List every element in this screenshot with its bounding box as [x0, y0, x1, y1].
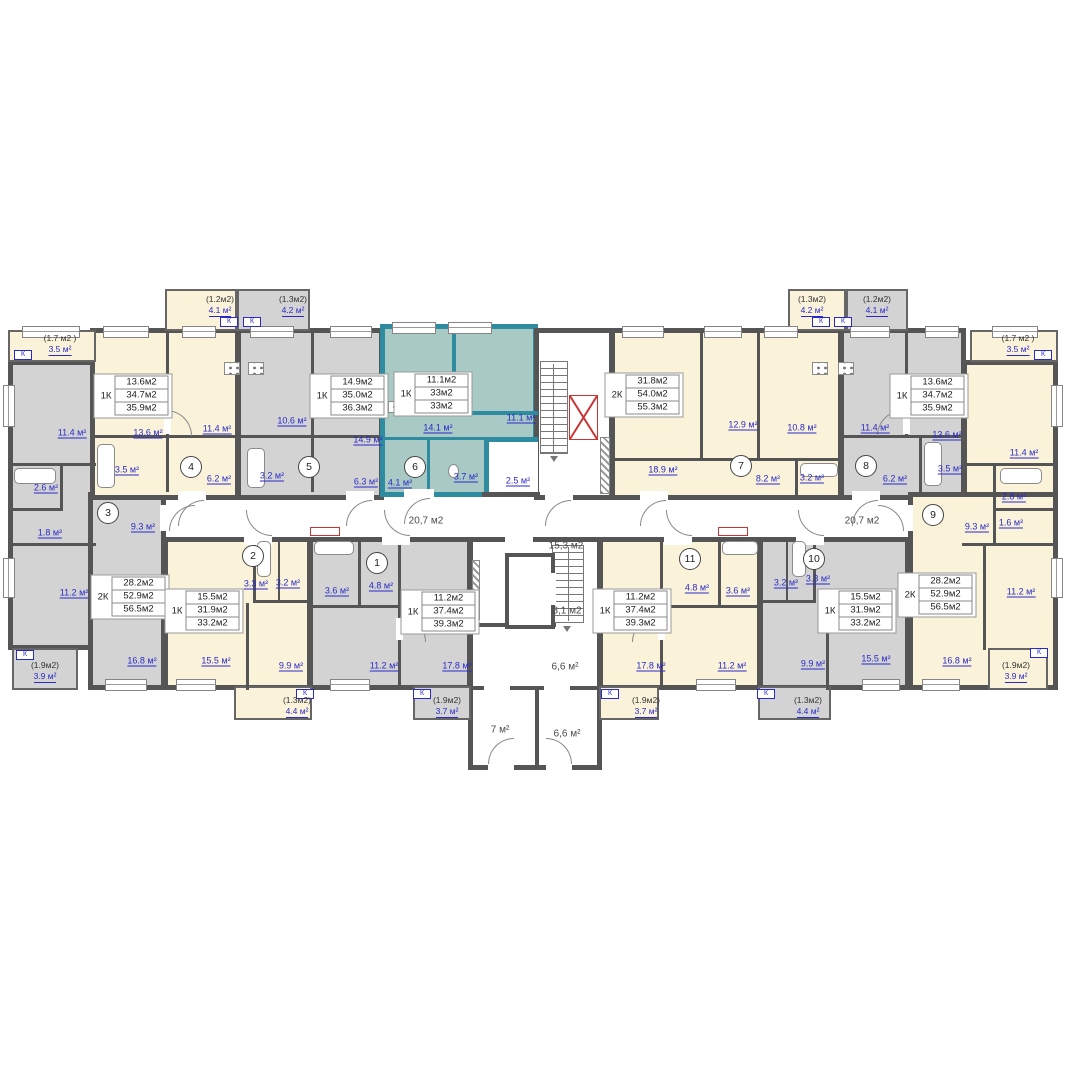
room-area-label: 2.8 м² — [1002, 492, 1026, 503]
bathtub-icon — [722, 541, 758, 555]
room-area-label: 14.9 м² — [353, 435, 382, 446]
room-area-label: 16.8 м² — [127, 656, 156, 667]
room-area-label: 3.7 м² — [454, 472, 478, 483]
room-area-label: 3.3 м² — [244, 579, 268, 590]
area-row: 33.2м2 — [186, 617, 240, 631]
area-row: 28.2м2 — [112, 577, 166, 591]
stair-area-label: 15,3 м2 — [549, 541, 584, 552]
room-area-label: 11.2 м² — [718, 661, 747, 672]
vestibule-area-label: 7 м² — [491, 725, 510, 736]
window — [105, 679, 147, 691]
entry-hall-unit-6 — [484, 437, 538, 497]
window — [3, 558, 15, 598]
balcony-size: (1.7 м2 ) — [1002, 333, 1035, 344]
area-table-unit-8: 1К 13.6м234.7м235.9м2 — [890, 374, 969, 419]
area-row: 31.9м2 — [186, 604, 240, 618]
room-count-label: 1К — [894, 391, 911, 402]
ac-unit-marker: К — [757, 689, 775, 699]
balcony-label: (1.7 м2 ) 3.5 м² — [1002, 333, 1035, 356]
balcony-area: 3.7 м² — [635, 706, 658, 718]
wall — [427, 440, 430, 493]
balcony-size: (1.2м2) — [863, 294, 891, 305]
balcony-size: (1.3м2) — [279, 294, 307, 305]
balcony-area: 4.4 м² — [797, 706, 820, 718]
wall — [358, 540, 361, 607]
entrance-opening[interactable] — [546, 764, 572, 771]
room-area-label: 4.8 м² — [369, 581, 393, 592]
bathtub-icon — [97, 444, 115, 488]
room-area-label: 3.6 м² — [325, 586, 349, 597]
balcony-size: (1.9м2) — [632, 695, 660, 706]
balcony-area: 4.1 м² — [209, 305, 232, 317]
area-row: 37.4м2 — [422, 605, 476, 619]
stove-icon — [838, 362, 854, 375]
room-area-label: 3.6 м² — [726, 586, 750, 597]
balcony-area: 4.1 м² — [866, 305, 889, 317]
window — [764, 326, 798, 338]
door-arc — [798, 510, 824, 536]
room-area-label: 8.2 м² — [756, 474, 780, 485]
balcony-label: (1.2м2) 4.1 м² — [863, 294, 891, 317]
area-row: 35.9м2 — [911, 402, 965, 416]
balcony-area: 4.2 м² — [282, 305, 305, 317]
wall — [385, 437, 486, 440]
area-row: 52.9м2 — [919, 588, 973, 602]
area-row: 36.3м2 — [331, 402, 385, 416]
window — [3, 385, 15, 427]
room-area-label: 6.2 м² — [207, 474, 231, 485]
area-row: 31.8м2 — [626, 375, 680, 389]
area-row: 33.2м2 — [839, 617, 893, 631]
area-row: 37.4м2 — [614, 604, 668, 618]
ac-unit-marker: К — [601, 689, 619, 699]
area-row: 39.3м2 — [614, 617, 668, 631]
wall — [758, 600, 816, 603]
window — [850, 326, 890, 338]
balcony-label: (1.9м2) 3.7 м² — [433, 695, 461, 718]
window — [622, 326, 664, 338]
wall — [613, 458, 841, 461]
room-area-label: 9.3 м² — [965, 522, 989, 533]
window — [330, 326, 372, 338]
fire-cabinet — [718, 527, 748, 536]
area-row: 11.2м2 — [422, 592, 476, 606]
unit-number-4[interactable]: 4 — [180, 456, 202, 478]
door-opening[interactable] — [640, 491, 668, 500]
room-count-label: 1К — [398, 389, 415, 400]
window — [925, 326, 959, 338]
hatched-wall — [600, 437, 610, 494]
balcony-label: (1.3м2) 4.2 м² — [798, 294, 826, 317]
balcony-size: (1.9м2) — [1002, 660, 1030, 671]
room-area-label: 6.3 м² — [354, 477, 378, 488]
room-area-label: 12.9 м² — [728, 420, 757, 431]
room-area-label: 14.1 м² — [423, 423, 452, 434]
room-area-label: 11.4 м² — [58, 428, 87, 439]
wall — [60, 463, 63, 511]
room-area-label: 4.8 м² — [685, 583, 709, 594]
wall — [962, 543, 1058, 546]
bathtub-icon — [247, 448, 265, 488]
balcony-size: (1.3м2) — [794, 695, 822, 706]
balcony-label: (1.3м2) 4.2 м² — [279, 294, 307, 317]
room-area-label: 13.6 м² — [932, 430, 961, 441]
area-table-unit-5: 1К 14.9м235.0м236.3м2 — [310, 374, 389, 419]
door-arc — [384, 510, 410, 536]
door-opening[interactable] — [545, 491, 573, 500]
window — [392, 322, 436, 334]
wall — [718, 540, 721, 607]
balcony-size: (1.2м2) — [206, 294, 234, 305]
area-row: 35.9м2 — [115, 402, 169, 416]
elevator-shaft-lower — [505, 553, 555, 629]
room-area-label: 9.9 м² — [279, 661, 303, 672]
entrance-opening[interactable] — [488, 764, 514, 771]
landing-area-label: 3,1 м2 — [552, 606, 581, 617]
area-row: 13.6м2 — [911, 376, 965, 390]
area-row: 54.0м2 — [626, 388, 680, 402]
room-area-label: 10.8 м² — [787, 423, 816, 434]
area-row: 15.5м2 — [839, 591, 893, 605]
lobby-area-label: 6,6 м² — [552, 662, 579, 673]
window — [176, 679, 216, 691]
area-row: 15.5м2 — [186, 591, 240, 605]
balcony-size: (1.7 м2 ) — [44, 333, 77, 344]
corridor-area-label: 20,7 м2 — [845, 516, 880, 527]
balcony-label: (1.7 м2 ) 3.5 м² — [44, 333, 77, 356]
wall — [8, 463, 96, 466]
door-opening[interactable] — [484, 686, 510, 690]
area-row: 11.1м2 — [415, 374, 469, 388]
wall — [278, 540, 280, 602]
balcony-size: (1.3м2) — [798, 294, 826, 305]
area-row: 14.9м2 — [331, 376, 385, 390]
window — [704, 326, 742, 338]
balcony-label: (1.9м2) 3.7 м² — [632, 695, 660, 718]
room-area-label: 11.2 м² — [1007, 587, 1036, 598]
door-opening[interactable] — [404, 489, 434, 498]
unit-number-5[interactable]: 5 — [298, 456, 320, 478]
balcony-size: (1.9м2) — [31, 660, 59, 671]
room-area-label: 11.4 м² — [861, 423, 890, 434]
wall — [786, 540, 788, 602]
area-row: 52.9м2 — [112, 590, 166, 604]
lobby-area-label: 6,6 м² — [554, 729, 581, 740]
wall — [995, 508, 1058, 511]
area-row: 34.7м2 — [115, 389, 169, 403]
room-area-label: 3.5 м² — [115, 465, 139, 476]
area-row: 56.5м2 — [919, 601, 973, 615]
room-area-label: 9.3 м² — [131, 522, 155, 533]
balcony-area: 3.5 м² — [1007, 344, 1030, 356]
room-area-label: 9.9 м² — [801, 659, 825, 670]
room-count-label: 1К — [405, 607, 422, 618]
area-table-unit-4: 1К 13.6м234.7м235.9м2 — [94, 374, 173, 419]
door-arc — [169, 505, 195, 531]
window — [182, 326, 216, 338]
room-area-label: 11.2 м² — [370, 661, 399, 672]
area-table-unit-11: 1К 11.2м237.4м239.3м2 — [593, 589, 672, 634]
balcony-label: (1.9м2) 3.9 м² — [1002, 660, 1030, 683]
floor-plan: К К К К К К К К К К К К 1К 13.6м234.7м23… — [0, 0, 1066, 1066]
window — [330, 679, 370, 691]
area-row: 33м2 — [415, 400, 469, 414]
room-count-label: 1К — [597, 606, 614, 617]
room-count-label: 1К — [314, 391, 331, 402]
ac-unit-marker: К — [413, 689, 431, 699]
room-area-label: 16.8 м² — [942, 656, 971, 667]
door-opening[interactable] — [346, 491, 374, 500]
room-count-label: 1К — [822, 606, 839, 617]
door-opening[interactable] — [544, 686, 570, 690]
balcony-area: 4.4 м² — [286, 706, 309, 718]
wall — [535, 688, 539, 768]
door-arc — [666, 510, 692, 536]
wall — [660, 605, 760, 608]
corridor-area-label: 20,7 м2 — [409, 516, 444, 527]
ac-unit-marker: К — [812, 317, 830, 327]
unit-number-3[interactable]: 3 — [97, 502, 119, 524]
room-area-label: 13.6 м² — [133, 428, 162, 439]
room-area-label: 11.1 м² — [507, 413, 536, 424]
area-table-unit-3: 2К 28.2м252.9м256.5м2 — [91, 575, 170, 620]
balcony-area: 4.2 м² — [801, 305, 824, 317]
fire-cabinet — [310, 527, 340, 536]
balcony-label: (1.9м2) 3.9 м² — [31, 660, 59, 683]
window — [1051, 385, 1063, 427]
area-row: 33м2 — [415, 387, 469, 401]
room-area-label: 4.1 м² — [388, 478, 412, 489]
area-row: 34.7м2 — [911, 389, 965, 403]
area-row: 39.3м2 — [422, 618, 476, 632]
balcony-size: (1.9м2) — [433, 695, 461, 706]
window — [862, 679, 900, 691]
wall — [311, 605, 401, 608]
window — [250, 326, 294, 338]
area-row: 31.9м2 — [839, 604, 893, 618]
staircase-upper — [540, 361, 568, 454]
room-area-label: 11.2 м² — [60, 588, 89, 599]
balcony-label: (1.2м2) 4.1 м² — [206, 294, 234, 317]
door-arc — [246, 510, 272, 536]
balcony-size: (1.3м2) — [283, 695, 311, 706]
room-area-label: 3.5 м² — [938, 464, 962, 475]
door-opening[interactable] — [160, 505, 169, 531]
room-count-label: 2К — [902, 590, 919, 601]
area-table-unit-9: 2К 28.2м252.9м256.5м2 — [898, 573, 977, 618]
ac-unit-marker: К — [220, 317, 238, 327]
area-row: 13.6м2 — [115, 376, 169, 390]
unit-number-2[interactable]: 2 — [242, 545, 264, 567]
unit-number-10[interactable]: 10 — [803, 548, 825, 570]
door-opening[interactable] — [664, 536, 692, 545]
room-area-label: 2.6 м² — [34, 483, 58, 494]
room-area-label: 15.5 м² — [201, 656, 230, 667]
ac-unit-marker: К — [16, 650, 34, 660]
door-arc — [878, 505, 904, 531]
area-table-unit-10: 1К 15.5м231.9м233.2м2 — [818, 589, 897, 634]
window — [103, 326, 149, 338]
room-area-label: 11.4 м² — [1010, 448, 1039, 459]
area-row: 35.0м2 — [331, 389, 385, 403]
door-arc — [640, 500, 666, 526]
room-area-label: 18.9 м² — [648, 465, 677, 476]
room-count-label: 1К — [98, 391, 115, 402]
ac-unit-marker: К — [243, 317, 261, 327]
room-area-label: 17.8 м² — [442, 661, 471, 672]
unit-number-6[interactable]: 6 — [404, 456, 426, 478]
room-area-label: 3.2 м² — [800, 473, 824, 484]
stove-icon — [812, 362, 828, 375]
window — [1051, 558, 1063, 598]
area-table-unit-2: 1К 15.5м231.9м233.2м2 — [165, 589, 244, 634]
wall — [482, 492, 540, 497]
stair-direction-arrow — [563, 626, 571, 632]
window — [696, 679, 736, 691]
room-count-label: 2К — [95, 592, 112, 603]
wall — [253, 600, 312, 603]
door-opening[interactable] — [505, 536, 533, 545]
balcony-area: 3.5 м² — [49, 344, 72, 356]
unit-number-8[interactable]: 8 — [855, 455, 877, 477]
stair-rail — [553, 364, 554, 452]
unit-number-11[interactable]: 11 — [679, 548, 701, 570]
bathtub-icon — [1000, 468, 1042, 484]
room-count-label: 1К — [169, 606, 186, 617]
room-area-label: 1.6 м² — [999, 518, 1023, 529]
room-area-label: 17.8 м² — [636, 661, 665, 672]
room-area-label: 15.5 м² — [861, 654, 890, 665]
area-table-unit-1: 1К 11.2м237.4м239.3м2 — [401, 590, 480, 635]
balcony-label: (1.3м2) 4.4 м² — [283, 695, 311, 718]
wall — [700, 332, 703, 458]
wall — [983, 543, 986, 650]
wall — [8, 508, 63, 511]
elevator-door-gap — [551, 573, 556, 605]
entry-hall-area-label: 2.5 м² — [506, 476, 530, 487]
area-row: 56.5м2 — [112, 603, 166, 617]
stove-icon — [224, 362, 240, 375]
balcony-area: 3.7 м² — [436, 706, 459, 718]
door-opening[interactable] — [852, 491, 880, 500]
wall — [246, 603, 249, 690]
ac-unit-marker: К — [834, 317, 852, 327]
elevator-shaft-upper — [569, 395, 598, 440]
area-table-unit-7: 2К 31.8м254.0м255.3м2 — [605, 373, 684, 418]
wall — [966, 463, 1058, 466]
room-area-label: 3.2 м² — [260, 471, 284, 482]
door-arc — [545, 500, 571, 526]
door-opening[interactable] — [382, 536, 410, 545]
ac-unit-marker: К — [14, 350, 32, 360]
wall — [8, 543, 96, 546]
area-table-unit-6: 1К 11.1м233м233м2 — [394, 372, 473, 417]
area-row: 55.3м2 — [626, 401, 680, 415]
balcony-area: 3.9 м² — [34, 671, 57, 683]
room-count-label: 2К — [609, 390, 626, 401]
stove-icon — [248, 362, 264, 375]
room-area-label: 11.4 м² — [203, 424, 232, 435]
unit-number-9[interactable]: 9 — [922, 504, 944, 526]
wall — [919, 438, 922, 495]
ac-unit-marker: К — [1034, 350, 1052, 360]
area-row: 11.2м2 — [614, 591, 668, 605]
unit-number-1[interactable]: 1 — [366, 552, 388, 574]
door-arc — [346, 500, 372, 526]
room-area-label: 10.6 м² — [277, 416, 306, 427]
ac-unit-marker: К — [1030, 648, 1048, 658]
door-opening[interactable] — [904, 505, 913, 531]
door-opening[interactable] — [178, 491, 206, 500]
window — [922, 679, 960, 691]
room-area-label: 3.2 м² — [774, 578, 798, 589]
window — [448, 322, 492, 334]
room-area-label: 3.3 м² — [806, 574, 830, 585]
area-row: 28.2м2 — [919, 575, 973, 589]
room-area-label: 3.2 м² — [276, 578, 300, 589]
wall — [993, 463, 996, 546]
elevator-x-icon — [570, 396, 597, 439]
balcony-label: (1.3м2) 4.4 м² — [794, 695, 822, 718]
stair-direction-arrow — [550, 456, 558, 462]
room-area-label: 6.2 м² — [883, 474, 907, 485]
balcony-area: 3.9 м² — [1005, 671, 1028, 683]
unit-number-7[interactable]: 7 — [730, 455, 752, 477]
wall — [795, 461, 798, 497]
room-area-label: 1.8 м² — [38, 528, 62, 539]
bathtub-icon — [314, 541, 354, 555]
wall — [757, 332, 760, 458]
unit-3-area[interactable] — [8, 360, 96, 650]
